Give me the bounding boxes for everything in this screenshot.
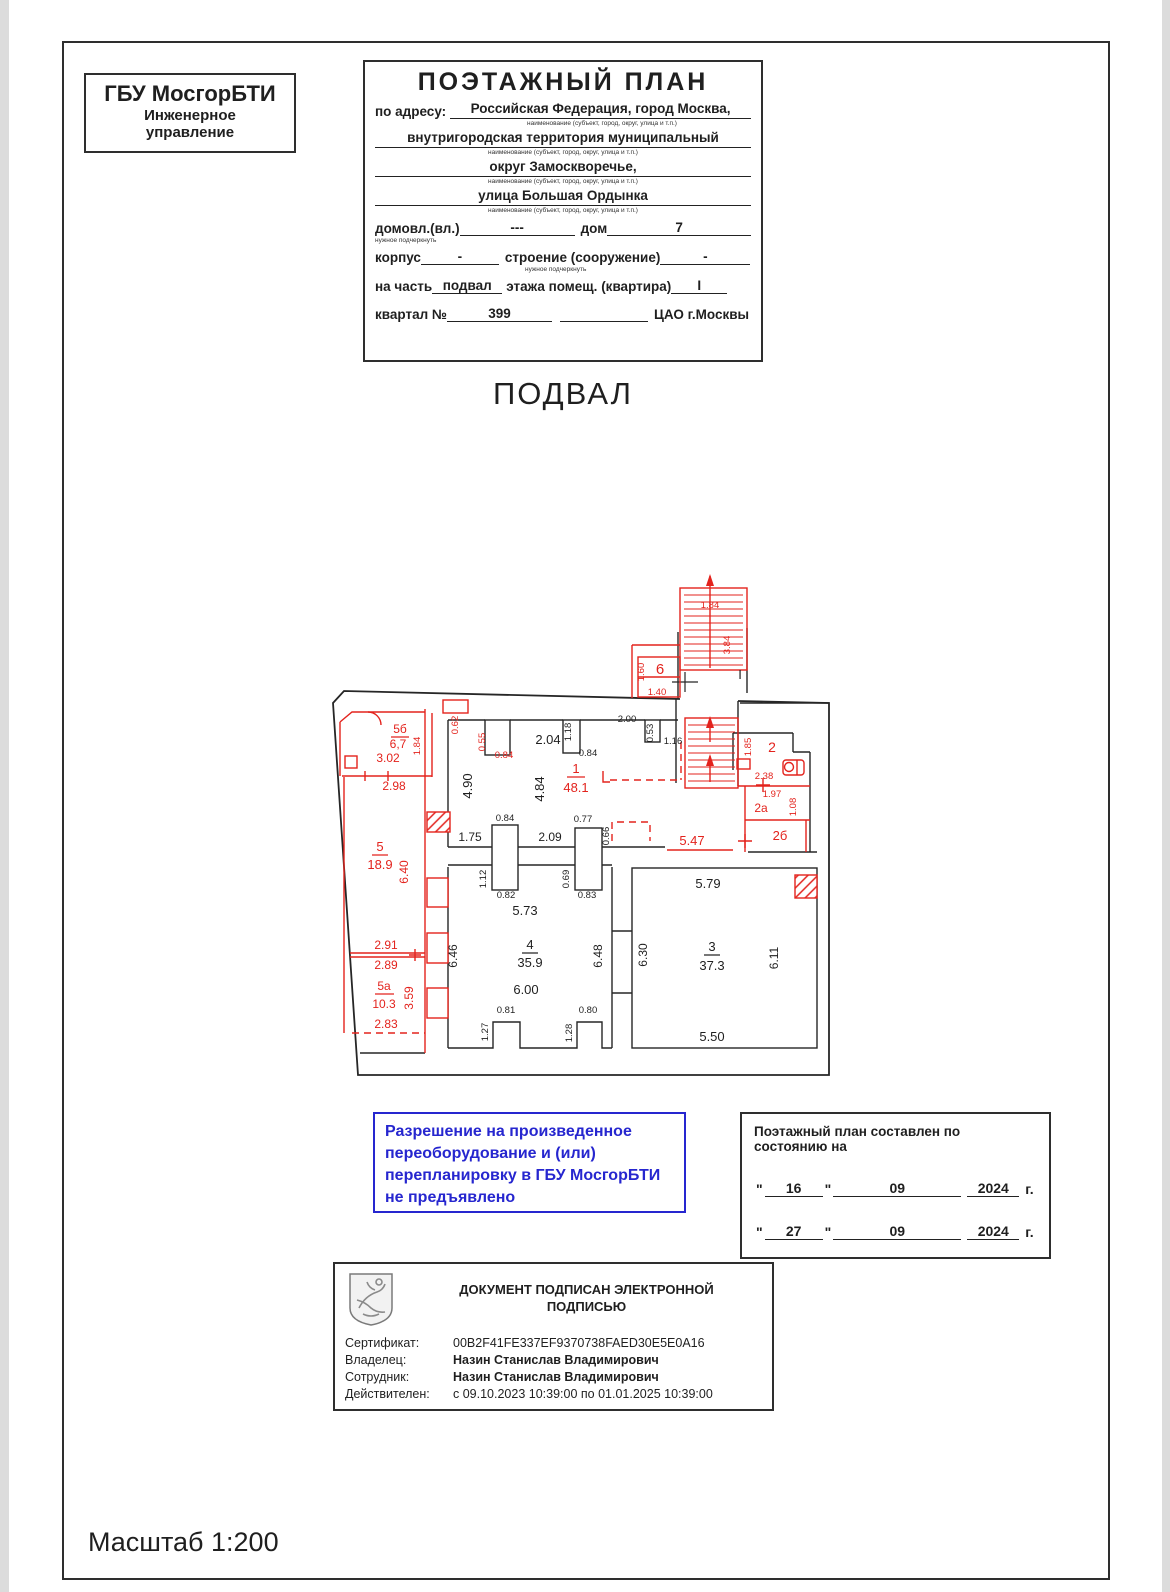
plan-label: 2б xyxy=(773,828,788,843)
plan-label: 0.53 xyxy=(645,724,656,743)
org-dept-line1: Инженерное xyxy=(86,107,294,124)
plan-label: 6.40 xyxy=(397,860,411,884)
kvartal-value: 399 xyxy=(447,306,552,322)
plan-label: 2.98 xyxy=(382,779,406,793)
address-line-4: улица Большая Ордынка xyxy=(375,188,751,206)
plan-label: 2.00 xyxy=(618,714,637,725)
sig-label: Действителен: xyxy=(345,1387,453,1401)
date-day: 27 xyxy=(765,1223,823,1240)
plan-label: 6.30 xyxy=(636,943,650,967)
address-line-1: Российская Федерация, город Москва, xyxy=(450,101,751,119)
document-title: ПОЭТАЖНЫЙ ПЛАН xyxy=(375,68,751,97)
plan-label: 0.84 xyxy=(579,748,598,759)
sig-value: Назин Станислав Владимирович xyxy=(453,1370,659,1384)
plan-label: 6,7 xyxy=(390,737,407,751)
signature-row: Сертификат: 00B2F41FE337EF9370738FAED30E… xyxy=(345,1336,762,1350)
plan-label: 6.00 xyxy=(513,982,538,997)
plan-label: 6.48 xyxy=(591,944,605,968)
plan-label: 3.59 xyxy=(402,986,416,1010)
survey-date-title: Поэтажный план составлен по состоянию на xyxy=(754,1124,1037,1154)
plan-label: 1.84 xyxy=(701,600,720,611)
plan-label: 1.84 xyxy=(412,737,423,756)
plan-label: 1.12 xyxy=(478,870,489,889)
blank-underline xyxy=(560,321,648,322)
address-line-3: округ Замоскворечье, xyxy=(375,159,751,177)
domovl-label: домовл.(вл.) xyxy=(375,221,460,236)
date-month: 09 xyxy=(833,1180,961,1197)
plan-label: 6.46 xyxy=(446,944,460,968)
okrug-value: ЦАО г.Москвы xyxy=(648,307,749,322)
plan-label: 1.18 xyxy=(563,723,574,742)
plan-label: 48.1 xyxy=(563,780,588,795)
scan-edge-right xyxy=(1162,0,1170,1592)
survey-date-box: Поэтажный план составлен по состоянию на… xyxy=(740,1112,1051,1259)
plan-label: 0.66 xyxy=(601,827,612,846)
plan-label: 2 xyxy=(768,739,776,755)
plan-label: 0.82 xyxy=(497,890,516,901)
plan-label: 5.73 xyxy=(512,903,537,918)
underline-note: нужное подчеркнуть xyxy=(525,266,751,273)
signature-row: Владелец: Назин Станислав Владимирович xyxy=(345,1353,762,1367)
org-dept-line2: управление xyxy=(86,124,294,141)
signature-title: ДОКУМЕНТ ПОДПИСАН ЭЛЕКТРОННОЙ ПОДПИСЬЮ xyxy=(411,1282,762,1316)
plan-label: 1.28 xyxy=(564,1024,575,1043)
plan-label: 1.97 xyxy=(763,789,782,800)
plan-label: 6.11 xyxy=(767,946,781,969)
floor-title: ПОДВАЛ xyxy=(363,376,763,412)
plan-label: 1.75 xyxy=(458,830,482,844)
survey-date-row: " 27 " 09 2024 г. xyxy=(754,1223,1037,1240)
plan-label: 0.69 xyxy=(561,870,572,889)
plan-label: 10.3 xyxy=(372,997,396,1011)
plan-label: 5.79 xyxy=(695,876,720,891)
korpus-value: - xyxy=(421,249,499,265)
plan-label: 1.27 xyxy=(480,1023,491,1042)
plan-label: 0.77 xyxy=(574,814,593,825)
plan-label: 0.84 xyxy=(495,750,514,761)
address-caption: наименование (субъект, город, округ, ули… xyxy=(375,207,751,214)
plan-label: 4.90 xyxy=(460,773,475,798)
plan-label: 2а xyxy=(754,801,768,815)
etazh-value: I xyxy=(671,278,727,294)
kvartal-label: квартал № xyxy=(375,307,447,322)
plan-label: 1 xyxy=(572,761,579,776)
date-suffix: г. xyxy=(1019,1181,1033,1197)
plan-label: 2.91 xyxy=(374,938,398,952)
date-year: 2024 xyxy=(967,1180,1019,1197)
signature-box: ДОКУМЕНТ ПОДПИСАН ЭЛЕКТРОННОЙ ПОДПИСЬЮ С… xyxy=(333,1262,774,1411)
plan-label: 0.81 xyxy=(497,1005,516,1016)
address-caption: наименование (субъект, город, округ, ули… xyxy=(453,120,751,127)
plan-label: 5 xyxy=(376,839,383,854)
underline-note: нужное подчеркнуть xyxy=(375,237,751,244)
signature-row: Действителен: с 09.10.2023 10:39:00 по 0… xyxy=(345,1387,762,1401)
plan-label: I xyxy=(738,667,742,682)
stroenie-label: строение (сооружение) xyxy=(499,250,660,265)
plan-label: 3 xyxy=(708,939,715,954)
plan-label: 5а xyxy=(377,979,391,993)
plan-label: 2.89 xyxy=(374,958,398,972)
plan-label: 0.84 xyxy=(496,813,515,824)
stroenie-value: - xyxy=(660,249,750,265)
moscow-emblem-icon xyxy=(345,1270,397,1328)
plan-label: 1.85 xyxy=(743,738,754,757)
date-month: 09 xyxy=(833,1223,961,1240)
plan-label: 4.84 xyxy=(532,776,547,801)
plan-label: 1.60 xyxy=(636,663,647,682)
plan-label: 2.83 xyxy=(374,1017,398,1031)
scale-note: Масштаб 1:200 xyxy=(88,1527,279,1558)
dom-label: дом xyxy=(575,221,608,236)
date-suffix: г. xyxy=(1019,1224,1033,1240)
plan-label: 1.08 xyxy=(788,798,799,817)
org-box: ГБУ МосгорБТИ Инженерное управление xyxy=(84,73,296,153)
dom-value: 7 xyxy=(607,220,751,236)
sig-value: Назин Станислав Владимирович xyxy=(453,1353,659,1367)
permission-line: Разрешение на произведенное xyxy=(385,1121,674,1143)
address-caption: наименование (субъект, город, округ, ули… xyxy=(375,178,751,185)
plan-label: 2.04 xyxy=(535,732,560,747)
plan-label: 35.9 xyxy=(517,955,542,970)
plan-label: 6 xyxy=(656,661,664,678)
plan-label: 1.16 xyxy=(664,736,683,747)
korpus-label: корпус xyxy=(375,250,421,265)
survey-date-row: " 16 " 09 2024 г. xyxy=(754,1180,1037,1197)
signature-row: Сотрудник: Назин Станислав Владимирович xyxy=(345,1370,762,1384)
plan-label: 5.47 xyxy=(679,833,704,848)
sig-label: Сертификат: xyxy=(345,1336,453,1350)
sig-label: Сотрудник: xyxy=(345,1370,453,1384)
plan-label: 2.09 xyxy=(538,830,562,844)
plan-label: 0.55 xyxy=(477,733,488,752)
plan-label: 2.38 xyxy=(755,771,774,782)
sig-value: с 09.10.2023 10:39:00 по 01.01.2025 10:3… xyxy=(453,1387,713,1401)
plan-label: 0.83 xyxy=(578,890,597,901)
permission-note: Разрешение на произведенное переоборудов… xyxy=(373,1112,686,1213)
floor-plan: 1.843.8461.601.40I0.620.550.842.041.180.… xyxy=(320,560,840,1080)
permission-line: переоборудование и (или) xyxy=(385,1143,674,1165)
dashed-bracket xyxy=(603,771,610,782)
plan-label: 0.62 xyxy=(450,716,461,735)
plan-label: 1.40 xyxy=(648,687,667,698)
address-caption: наименование (субъект, город, округ, ули… xyxy=(375,149,751,156)
sig-value: 00B2F41FE337EF9370738FAED30E5E0A16 xyxy=(453,1336,705,1350)
date-day: 16 xyxy=(765,1180,823,1197)
plan-label: 0.80 xyxy=(579,1005,598,1016)
org-name: ГБУ МосгорБТИ xyxy=(86,81,294,107)
plan-label: 37.3 xyxy=(699,958,724,973)
permission-line: перепланировку в ГБУ МосгорБТИ xyxy=(385,1165,674,1187)
plan-label: 5б xyxy=(393,722,407,736)
etazh-label: этажа помещ. (квартира) xyxy=(502,279,671,294)
plan-label: 3.02 xyxy=(376,751,400,765)
plan-label: 3.84 xyxy=(722,636,733,655)
sig-label: Владелец: xyxy=(345,1353,453,1367)
na-chast-value: подвал xyxy=(432,278,502,294)
na-chast-label: на часть xyxy=(375,279,432,294)
address-line-2: внутригородская территория муниципальный xyxy=(375,130,751,148)
address-label: по адресу: xyxy=(375,104,450,119)
permission-line: не предъявлено xyxy=(385,1187,674,1209)
domovl-value: --- xyxy=(460,220,575,236)
plan-label: 4 xyxy=(526,937,533,952)
plan-label: 5.50 xyxy=(699,1029,724,1044)
date-year: 2024 xyxy=(967,1223,1019,1240)
plan-label: 18.9 xyxy=(367,857,392,872)
scan-edge-left xyxy=(0,0,9,1592)
header-box: ПОЭТАЖНЫЙ ПЛАН по адресу: Российская Фед… xyxy=(363,60,763,362)
